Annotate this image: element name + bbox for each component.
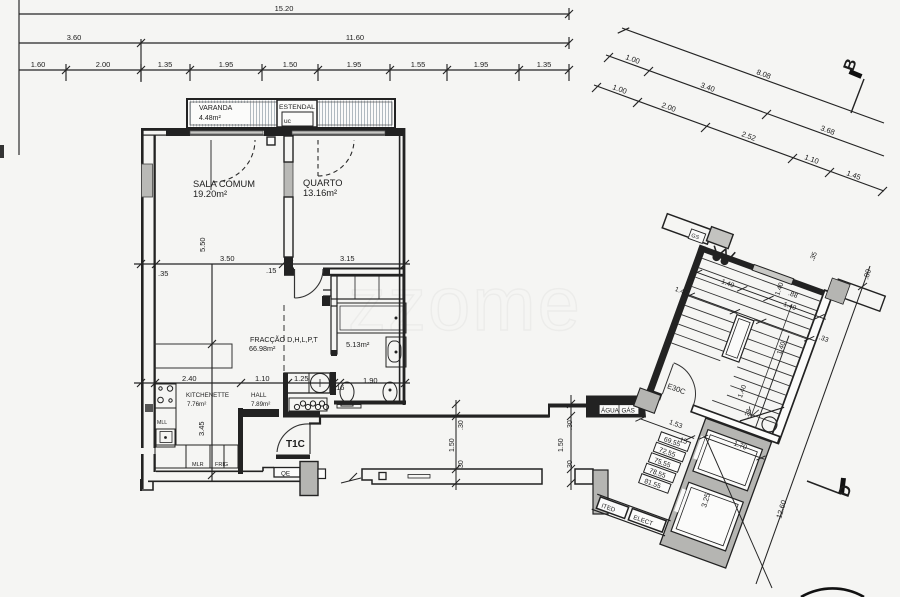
svg-text:1.95: 1.95: [219, 60, 234, 69]
svg-text:1.25: 1.25: [294, 374, 309, 383]
svg-text:VARANDA: VARANDA: [199, 105, 233, 112]
svg-text:QE: QE: [281, 471, 290, 478]
svg-text:FRIG: FRIG: [215, 462, 228, 468]
svg-text:5.13m²: 5.13m²: [346, 340, 370, 349]
svg-text:1.95: 1.95: [347, 60, 362, 69]
svg-text:GÁS: GÁS: [622, 406, 635, 415]
svg-text:15.20: 15.20: [275, 4, 294, 13]
svg-text:1.55: 1.55: [411, 60, 426, 69]
svg-text:7.76m²: 7.76m²: [187, 401, 206, 408]
svg-text:1.60: 1.60: [31, 60, 46, 69]
svg-text:.15: .15: [266, 266, 276, 275]
svg-text:MLL: MLL: [157, 420, 167, 426]
svg-text:1.35: 1.35: [158, 60, 173, 69]
svg-text:1.95: 1.95: [474, 60, 489, 69]
svg-text:ÁGUA: ÁGUA: [601, 406, 620, 415]
svg-text:FRACÇÃO D,H,L,P,T: FRACÇÃO D,H,L,P,T: [250, 335, 318, 344]
svg-text:1.50: 1.50: [283, 60, 298, 69]
svg-text:66.98m²: 66.98m²: [249, 344, 276, 353]
svg-text:.35: .35: [158, 269, 168, 278]
svg-text:1.35: 1.35: [537, 60, 552, 69]
svg-text:13.16m²: 13.16m²: [303, 188, 337, 198]
svg-text:3.50: 3.50: [220, 254, 235, 263]
svg-text:QUARTO: QUARTO: [303, 178, 342, 188]
svg-text:1.10: 1.10: [255, 374, 270, 383]
svg-text:11.60: 11.60: [346, 33, 364, 42]
svg-text:.30: .30: [567, 460, 574, 470]
svg-text:HALL: HALL: [251, 392, 267, 399]
svg-text:1.50: 1.50: [558, 438, 565, 452]
svg-text:ESTENDAL: ESTENDAL: [279, 104, 315, 111]
svg-text:19.20m²: 19.20m²: [193, 189, 227, 199]
svg-text:1.50: 1.50: [449, 438, 456, 452]
svg-text:1.90: 1.90: [363, 376, 378, 385]
svg-text:2.40: 2.40: [182, 374, 197, 383]
svg-text:.30: .30: [458, 420, 465, 430]
svg-text:SALA COMUM: SALA COMUM: [193, 179, 255, 189]
svg-text:uc: uc: [284, 118, 292, 125]
svg-text:KITCHENETTE: KITCHENETTE: [186, 392, 229, 399]
svg-text:7.89m²: 7.89m²: [251, 401, 270, 408]
svg-text:4.48m²: 4.48m²: [199, 115, 221, 122]
svg-text:3.15: 3.15: [340, 254, 355, 263]
svg-text:.30: .30: [458, 460, 465, 470]
svg-text:2.00: 2.00: [96, 60, 111, 69]
svg-text:3.45: 3.45: [197, 421, 206, 436]
svg-text:MLR: MLR: [192, 462, 204, 468]
svg-text:3.60: 3.60: [67, 33, 82, 42]
svg-text:.30: .30: [567, 420, 574, 430]
svg-text:T1C: T1C: [286, 439, 305, 450]
svg-text:5.50: 5.50: [198, 237, 207, 252]
